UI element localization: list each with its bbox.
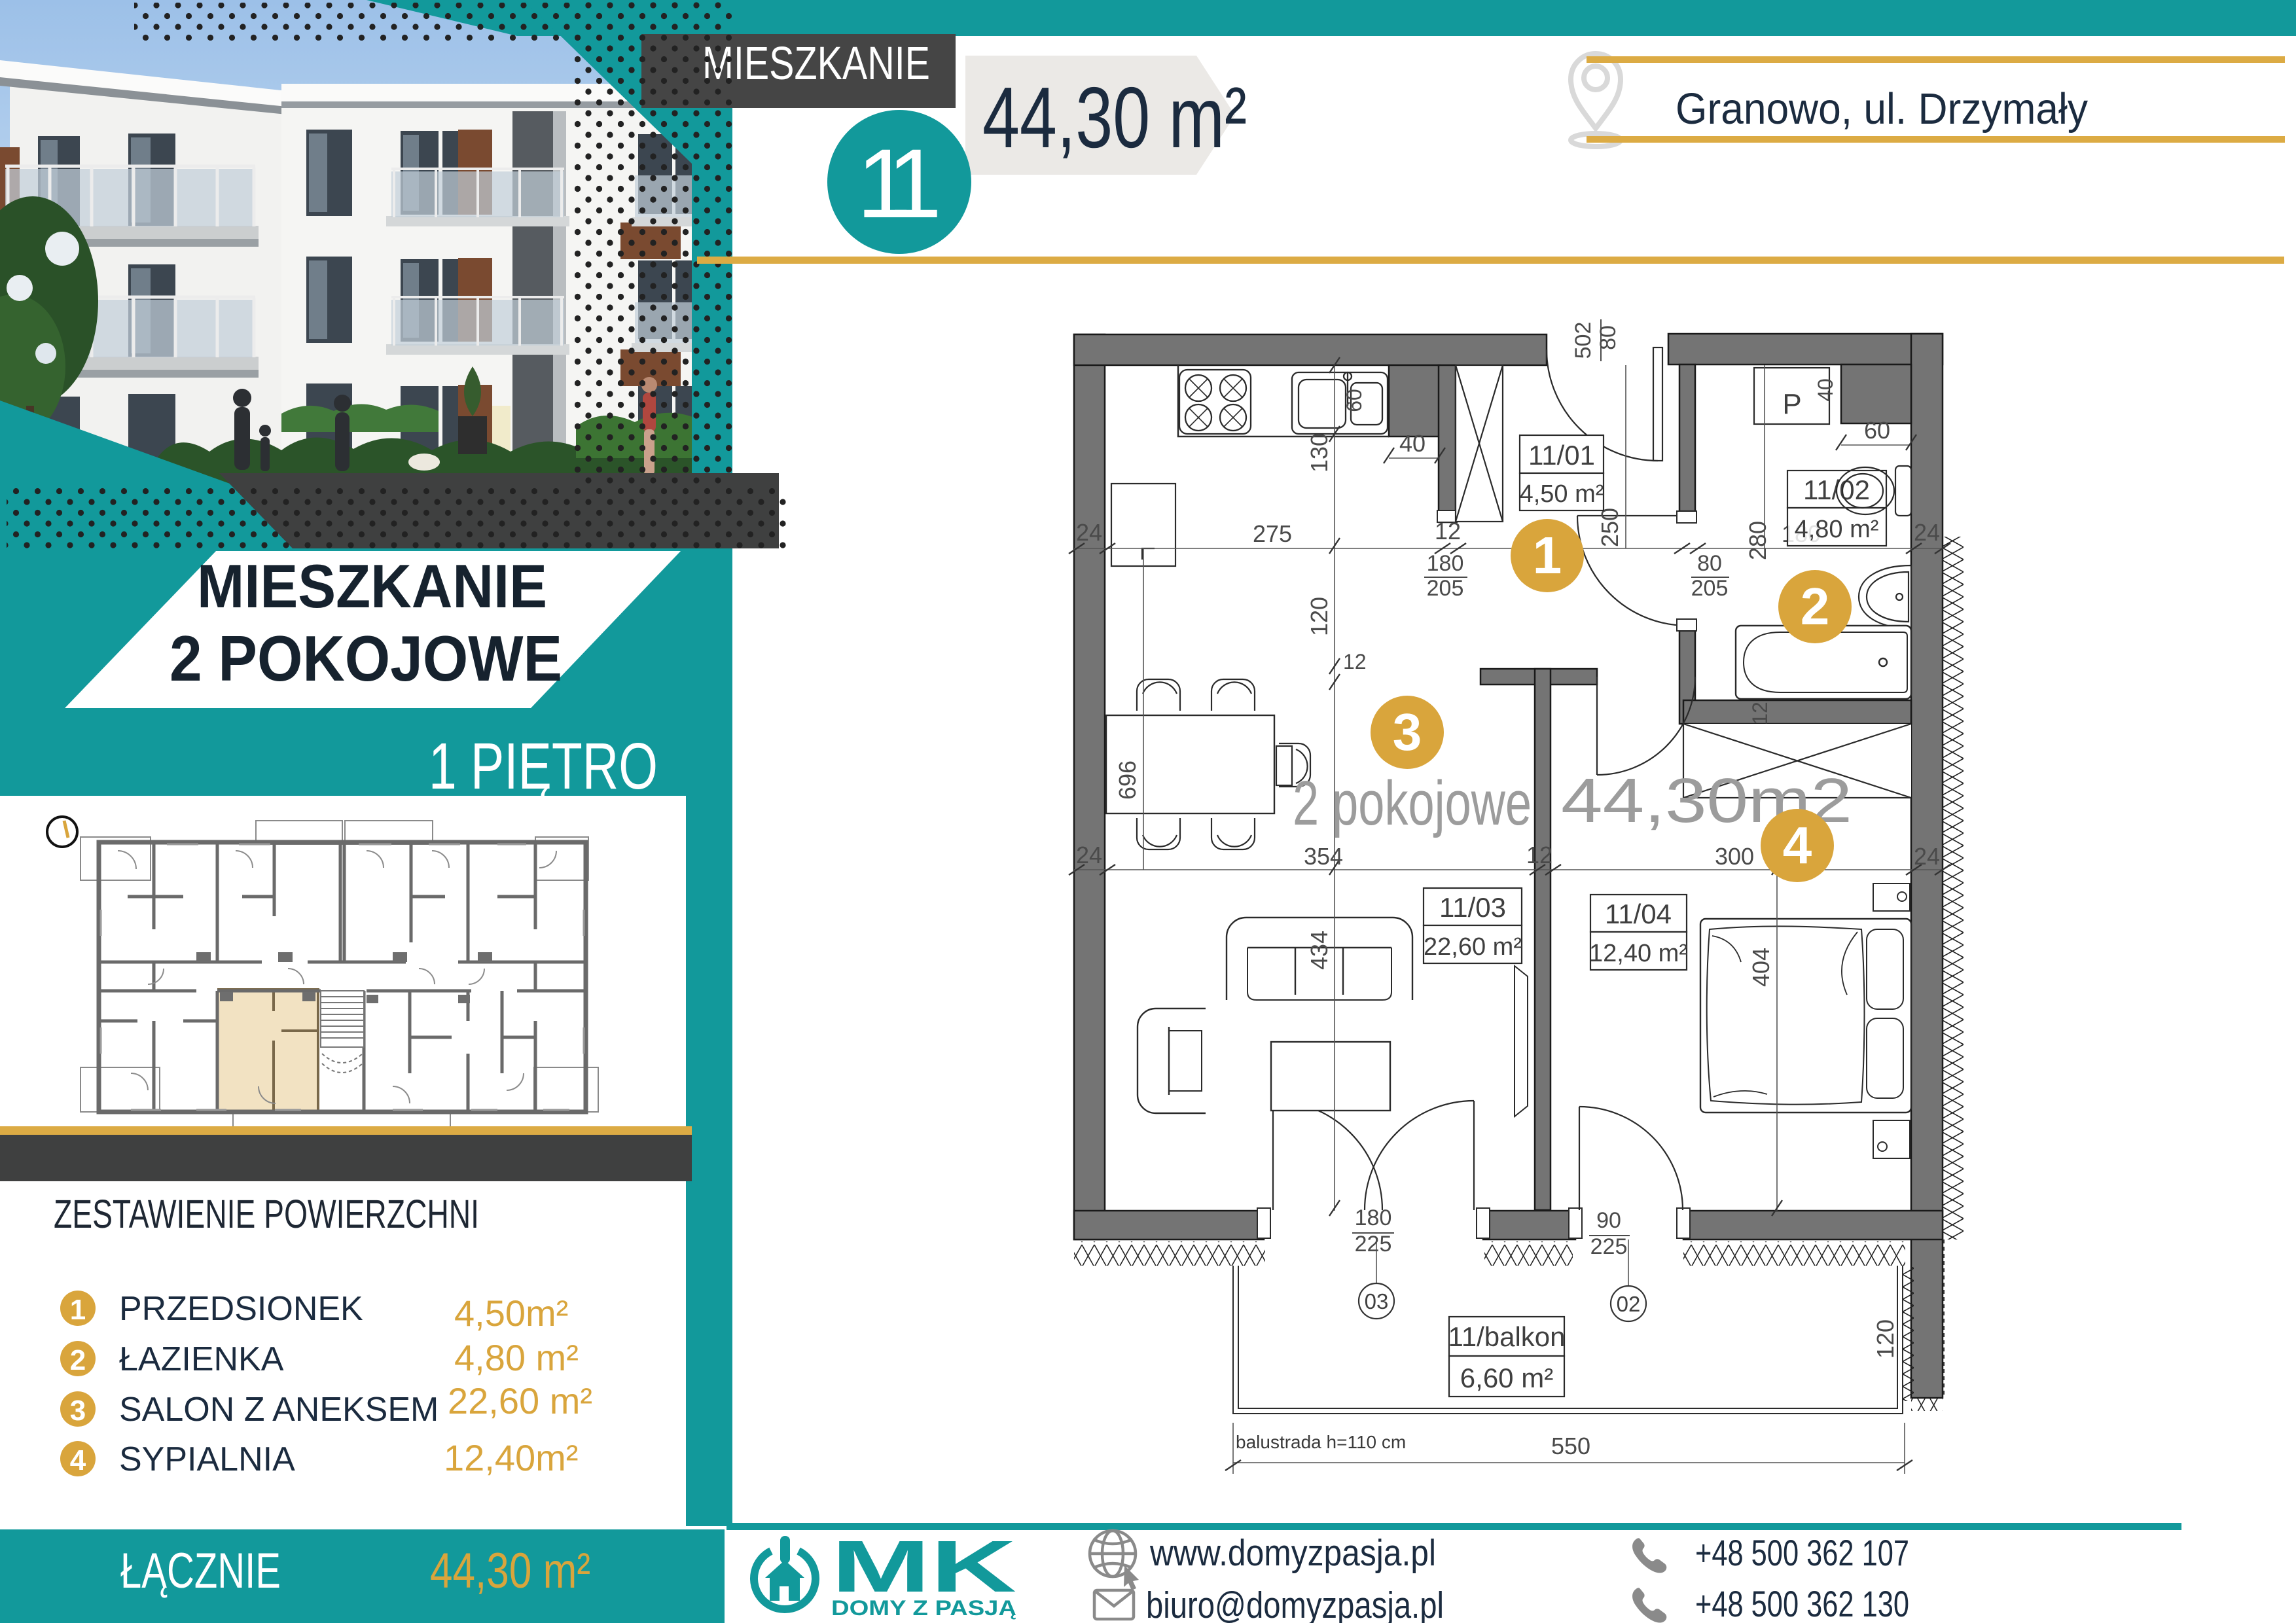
svg-text:PRZEDSIONEK: PRZEDSIONEK (119, 1290, 363, 1328)
svg-text:225: 225 (1590, 1234, 1628, 1259)
svg-text:3: 3 (70, 1395, 86, 1427)
svg-text:696: 696 (1114, 760, 1141, 800)
svg-text:4,80 m²: 4,80 m² (1795, 516, 1879, 543)
svg-text:1: 1 (1533, 526, 1562, 584)
svg-text:24: 24 (1076, 842, 1102, 868)
svg-text:SALON Z ANEKSEM: SALON Z ANEKSEM (119, 1391, 439, 1429)
svg-text:DOMY Z PASJĄ: DOMY Z PASJĄ (831, 1596, 1016, 1620)
svg-text:180: 180 (1355, 1205, 1392, 1230)
svg-text:11/04: 11/04 (1605, 899, 1672, 929)
svg-text:MIESZKANIE: MIESZKANIE (702, 38, 930, 90)
svg-text:205: 205 (1691, 576, 1729, 601)
svg-text:80: 80 (1697, 551, 1722, 576)
svg-text:biuro@domyzpasja.pl: biuro@domyzpasja.pl (1146, 1584, 1444, 1623)
svg-text:22,60 m²: 22,60 m² (1424, 933, 1522, 961)
svg-text:3: 3 (1393, 703, 1422, 761)
svg-text:80: 80 (1596, 325, 1621, 350)
svg-text:40: 40 (1399, 430, 1426, 457)
svg-text:11: 11 (857, 128, 942, 238)
svg-text:balustrada h=110 cm: balustrada h=110 cm (1236, 1432, 1406, 1452)
svg-text:2 pokojowe: 2 pokojowe (1293, 768, 1532, 838)
svg-text:404: 404 (1748, 948, 1774, 987)
svg-text:12: 12 (1748, 702, 1772, 725)
svg-text:+48 500 362 130: +48 500 362 130 (1695, 1583, 1909, 1623)
svg-text:SYPIALNIA: SYPIALNIA (119, 1440, 295, 1478)
svg-text:300: 300 (1715, 843, 1754, 870)
svg-text:550: 550 (1551, 1433, 1590, 1459)
svg-text:40: 40 (1814, 378, 1837, 402)
svg-text:MK: MK (831, 1525, 1016, 1607)
svg-text:90: 90 (1596, 1208, 1621, 1233)
svg-text:12: 12 (1343, 650, 1367, 673)
svg-text:205: 205 (1427, 576, 1464, 601)
svg-text:250: 250 (1596, 508, 1623, 547)
svg-text:502: 502 (1571, 322, 1596, 359)
svg-text:434: 434 (1306, 931, 1333, 970)
svg-text:+48 500 362 107: +48 500 362 107 (1695, 1532, 1909, 1573)
svg-text:Granowo, ul. Drzymały: Granowo, ul. Drzymały (1676, 84, 2088, 134)
svg-text:22,60 m²: 22,60 m² (448, 1380, 592, 1421)
svg-text:1: 1 (70, 1294, 86, 1326)
svg-text:ŁĄCZNIE: ŁĄCZNIE (120, 1543, 281, 1599)
svg-text:11/balkon: 11/balkon (1448, 1321, 1565, 1352)
svg-text:354: 354 (1304, 843, 1343, 870)
svg-text:02: 02 (1617, 1292, 1641, 1316)
svg-text:120: 120 (1872, 1319, 1899, 1359)
svg-text:12: 12 (1435, 518, 1461, 544)
svg-text:12: 12 (1526, 842, 1552, 868)
svg-text:4,50m²: 4,50m² (454, 1293, 568, 1334)
svg-text:ŁAZIENKA: ŁAZIENKA (119, 1340, 284, 1378)
svg-text:280: 280 (1744, 521, 1771, 560)
svg-text:24: 24 (1914, 843, 1940, 870)
svg-text:2 POKOJOWE: 2 POKOJOWE (170, 622, 562, 694)
svg-text:60: 60 (1342, 389, 1366, 412)
svg-text:11/03: 11/03 (1439, 892, 1506, 923)
svg-text:www.domyzpasja.pl: www.domyzpasja.pl (1149, 1532, 1436, 1574)
svg-text:4,80 m²: 4,80 m² (454, 1337, 579, 1378)
svg-text:2: 2 (1801, 577, 1830, 635)
svg-text:P: P (1782, 388, 1801, 420)
svg-text:4: 4 (1783, 816, 1812, 874)
svg-text:120: 120 (1306, 597, 1333, 636)
svg-text:24: 24 (1914, 519, 1940, 546)
svg-text:2: 2 (70, 1344, 86, 1376)
svg-text:MIESZKANIE: MIESZKANIE (197, 552, 547, 620)
svg-text:4: 4 (70, 1444, 86, 1476)
svg-text:4,50 m²: 4,50 m² (1520, 480, 1604, 508)
svg-text:12,40m²: 12,40m² (444, 1437, 578, 1478)
svg-text:44,30 m²: 44,30 m² (430, 1543, 590, 1599)
svg-text:225: 225 (1355, 1232, 1392, 1257)
svg-text:130: 130 (1306, 433, 1333, 473)
svg-text:275: 275 (1253, 520, 1292, 547)
svg-text:12,40 m²: 12,40 m² (1589, 940, 1687, 967)
svg-text:11/01: 11/01 (1528, 440, 1595, 471)
svg-text:03: 03 (1365, 1289, 1389, 1313)
svg-text:6,60 m²: 6,60 m² (1460, 1363, 1553, 1393)
svg-text:44,30 m²: 44,30 m² (982, 69, 1247, 166)
svg-text:1 PIĘTRO: 1 PIĘTRO (429, 730, 658, 803)
svg-text:24: 24 (1076, 519, 1102, 546)
svg-text:180: 180 (1427, 551, 1464, 576)
svg-text:ZESTAWIENIE POWIERZCHNI: ZESTAWIENIE POWIERZCHNI (54, 1192, 479, 1236)
svg-text:60: 60 (1864, 417, 1890, 444)
